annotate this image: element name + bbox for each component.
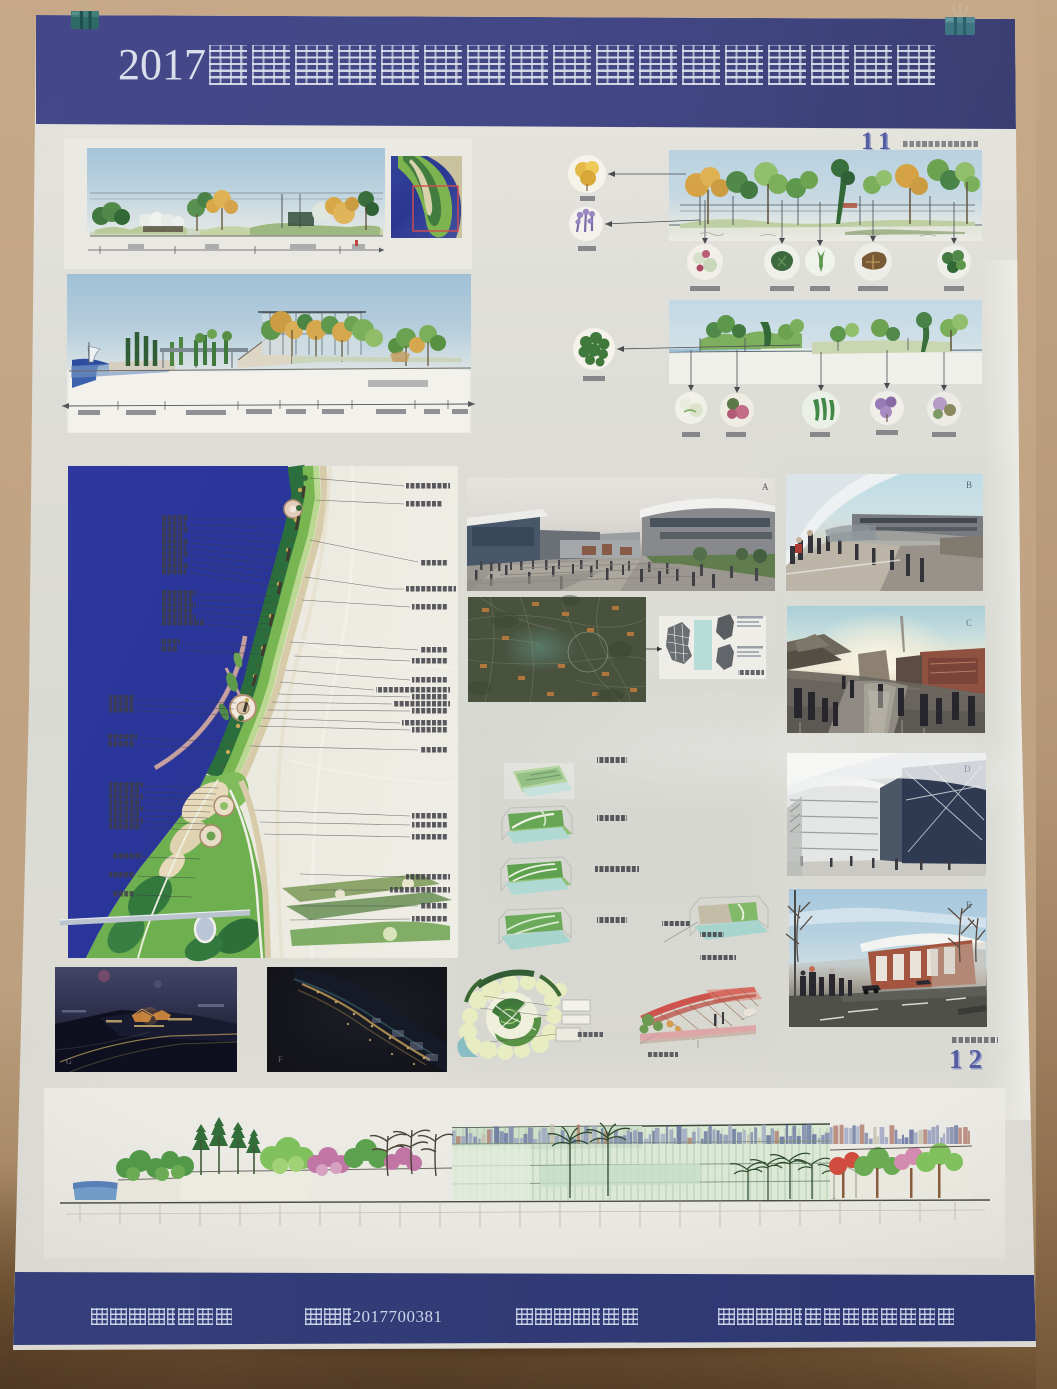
- svg-text:A: A: [762, 482, 769, 492]
- svg-text:E: E: [966, 900, 972, 910]
- svg-text:F: F: [278, 1055, 283, 1064]
- svg-text:C: C: [966, 618, 972, 628]
- svg-text:D: D: [964, 764, 971, 774]
- svg-text:B: B: [966, 480, 972, 490]
- svg-text:G: G: [66, 1057, 72, 1066]
